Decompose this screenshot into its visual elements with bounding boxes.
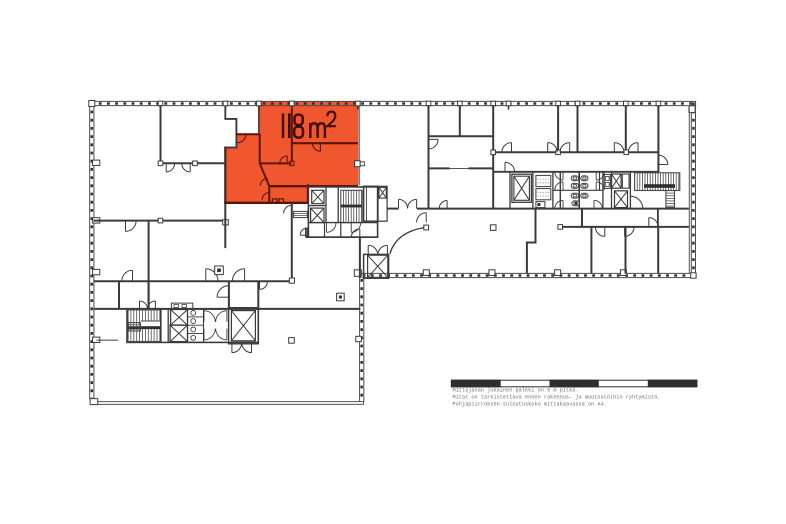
svg-text:Mitat on tarkistettava ennen r: Mitat on tarkistettava ennen rakennus- j… bbox=[453, 395, 661, 401]
svg-text:Pohjapiirroksen tulostuskoko m: Pohjapiirroksen tulostuskoko mittakaavas… bbox=[453, 401, 607, 407]
svg-text:Mittajanan jokainen palkki on: Mittajanan jokainen palkki on 5 m pitkä. bbox=[453, 388, 579, 394]
